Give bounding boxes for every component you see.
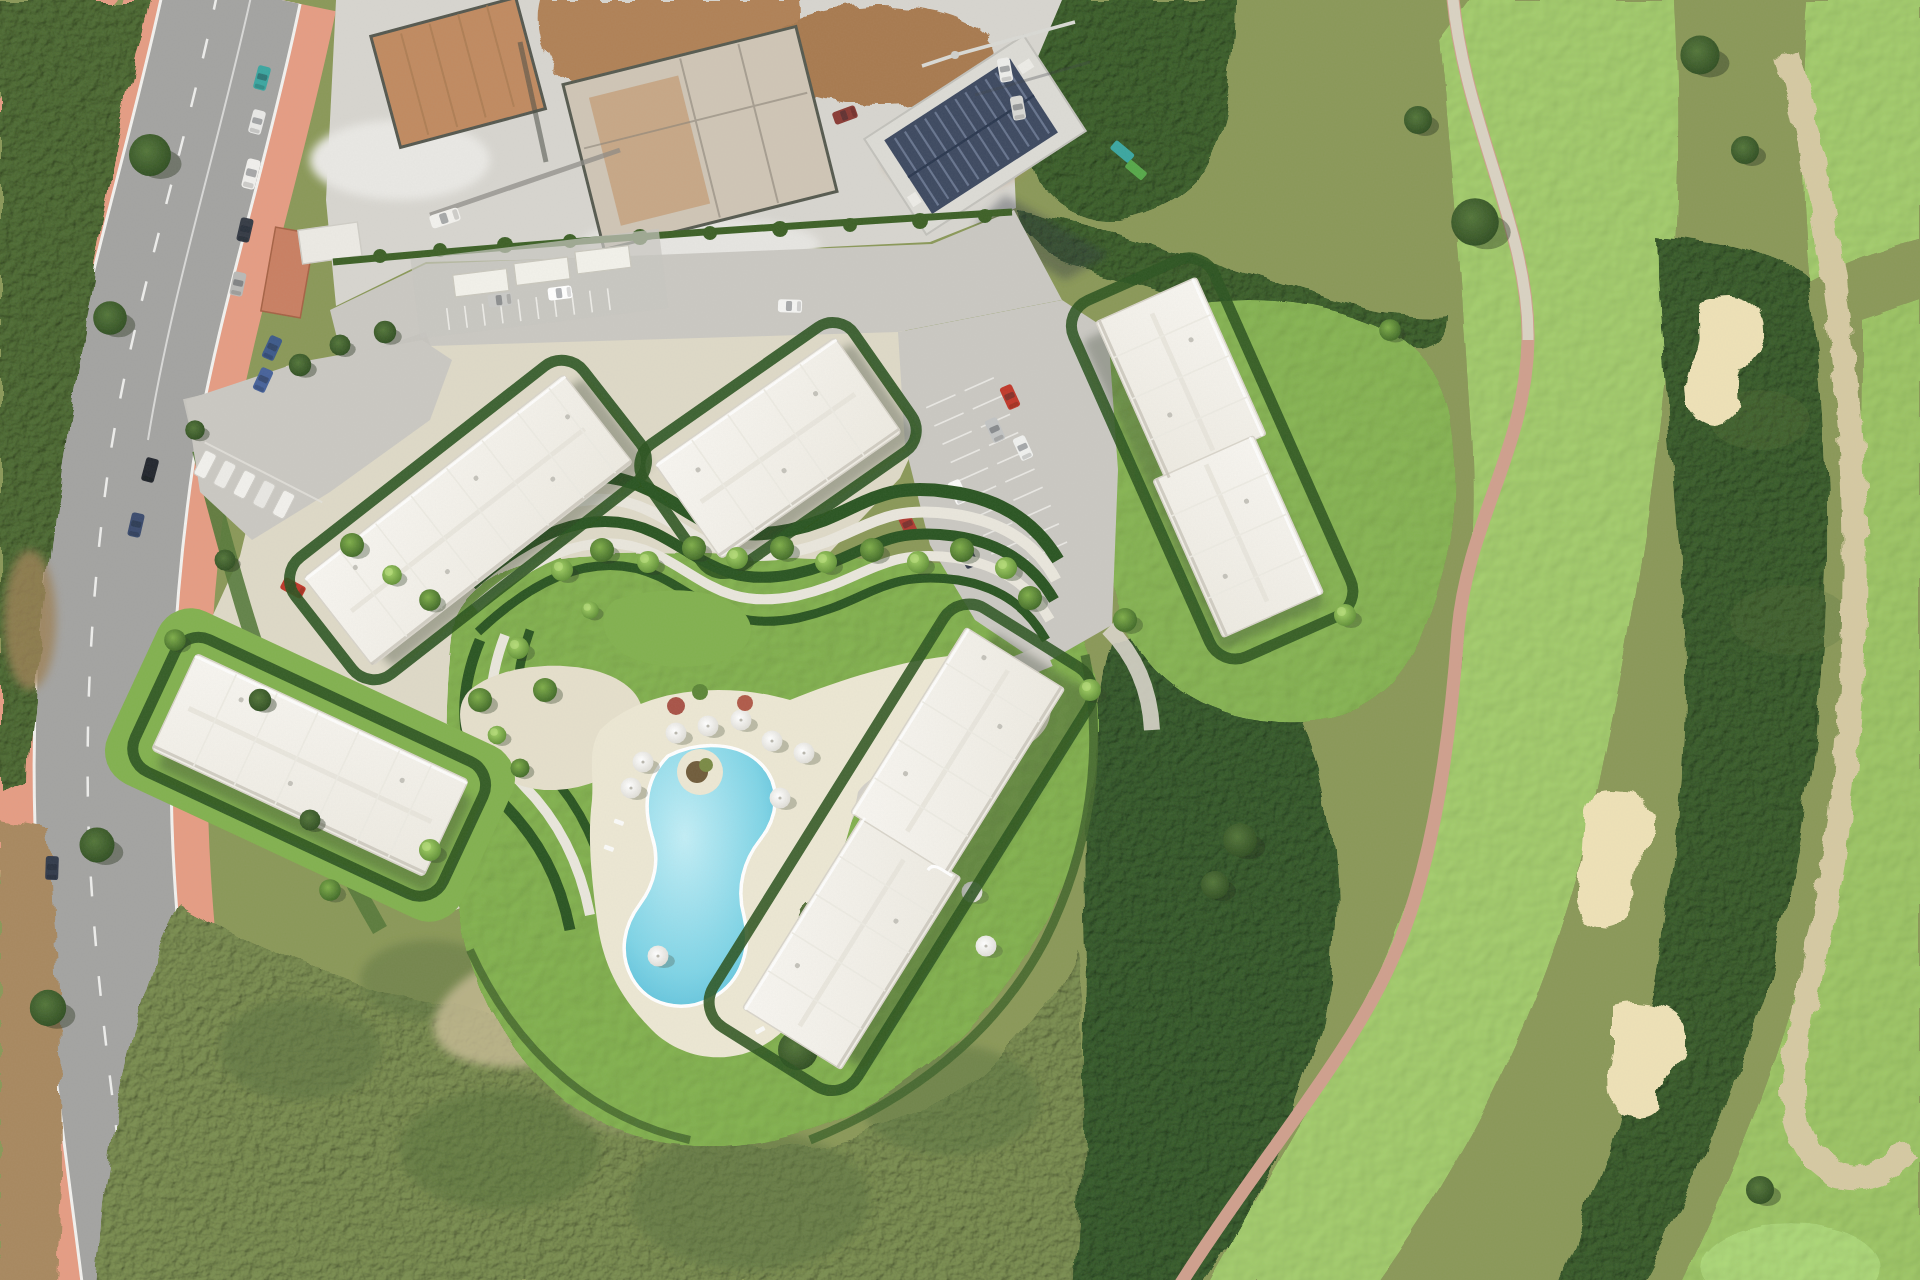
photo-grain xyxy=(0,0,1920,1280)
aerial-photo xyxy=(0,0,1920,1280)
